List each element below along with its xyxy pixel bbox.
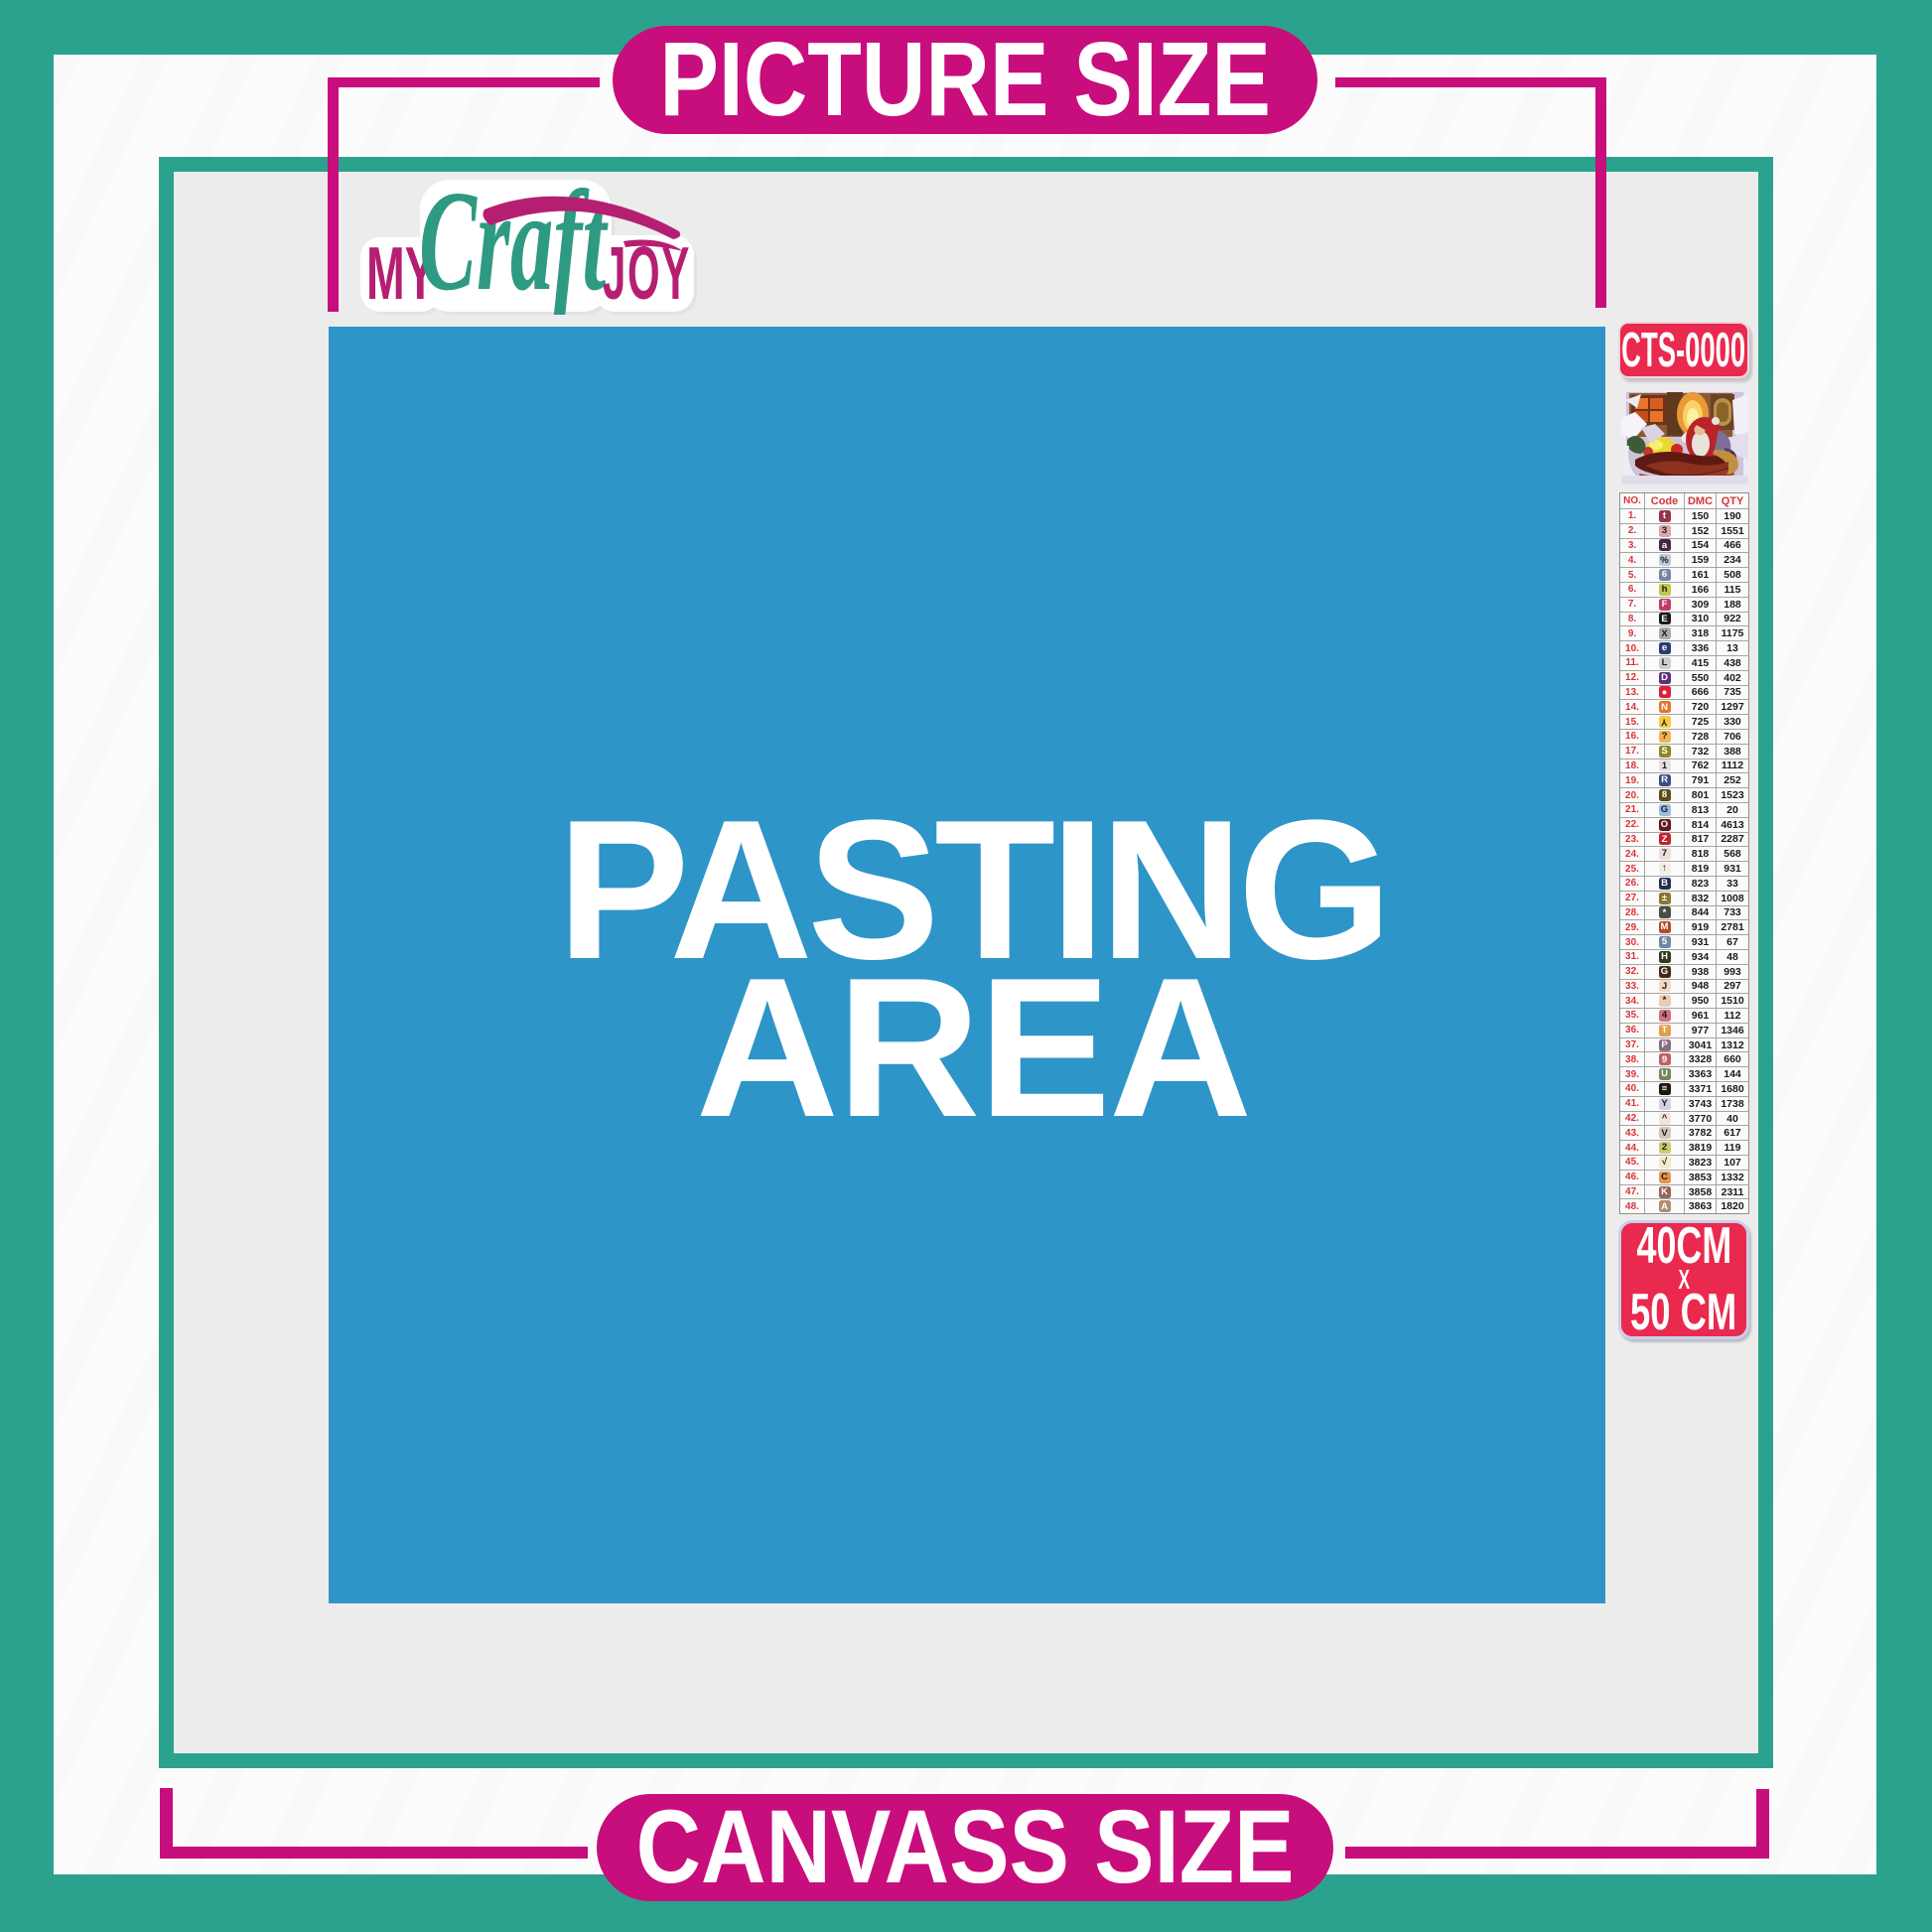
svg-text:JOY: JOY: [603, 231, 691, 315]
